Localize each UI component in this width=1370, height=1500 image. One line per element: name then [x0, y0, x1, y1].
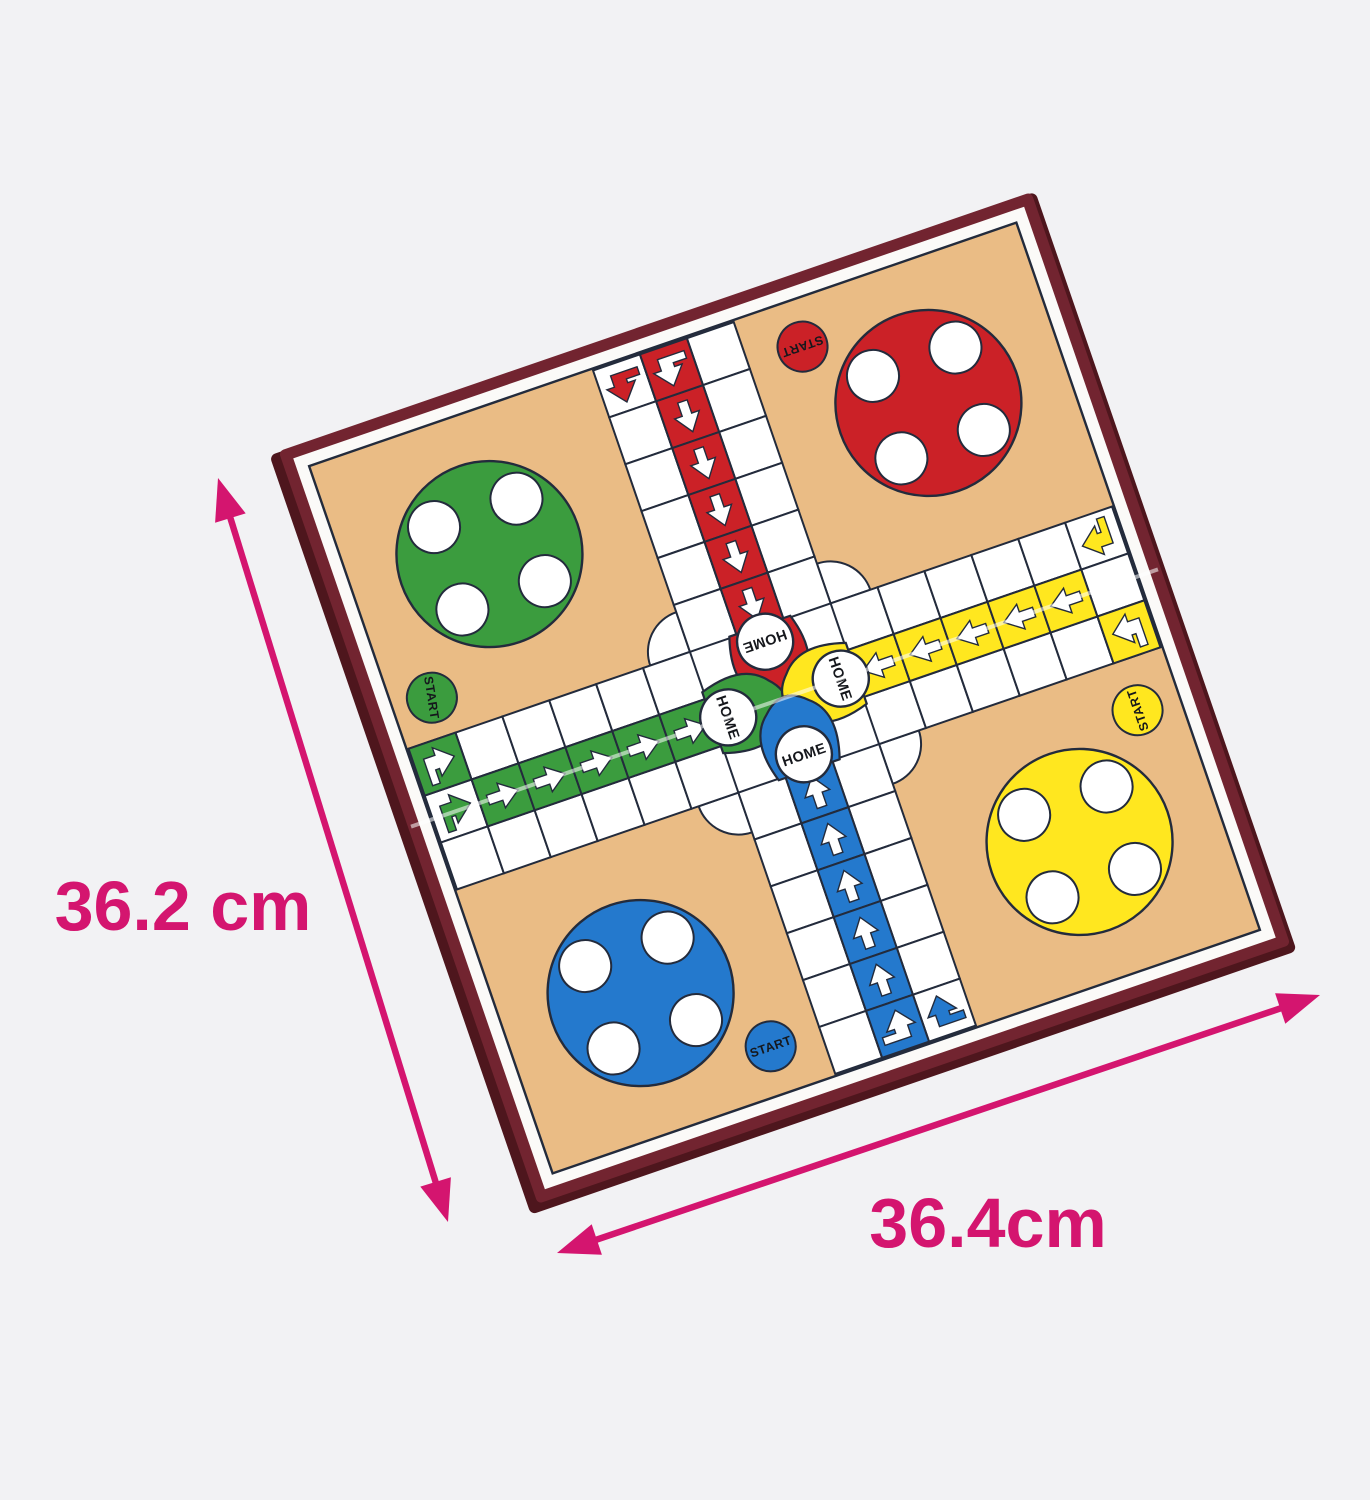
height-arrow-head-bottom-icon: [420, 1177, 451, 1222]
height-arrow-head-top-icon: [215, 478, 246, 523]
product-dimension-image: STARTHOMESTARTHOMESTARTHOMESTARTHOME 36.…: [0, 0, 1370, 1500]
height-dimension-label: 36.2 cm: [55, 867, 312, 945]
width-arrow-head-right-icon: [1275, 993, 1320, 1023]
ludo-board: STARTHOMESTARTHOMESTARTHOMESTARTHOME: [269, 191, 1297, 1215]
width-arrow-head-left-icon: [557, 1224, 602, 1254]
width-dimension-label: 36.4cm: [869, 1184, 1106, 1262]
